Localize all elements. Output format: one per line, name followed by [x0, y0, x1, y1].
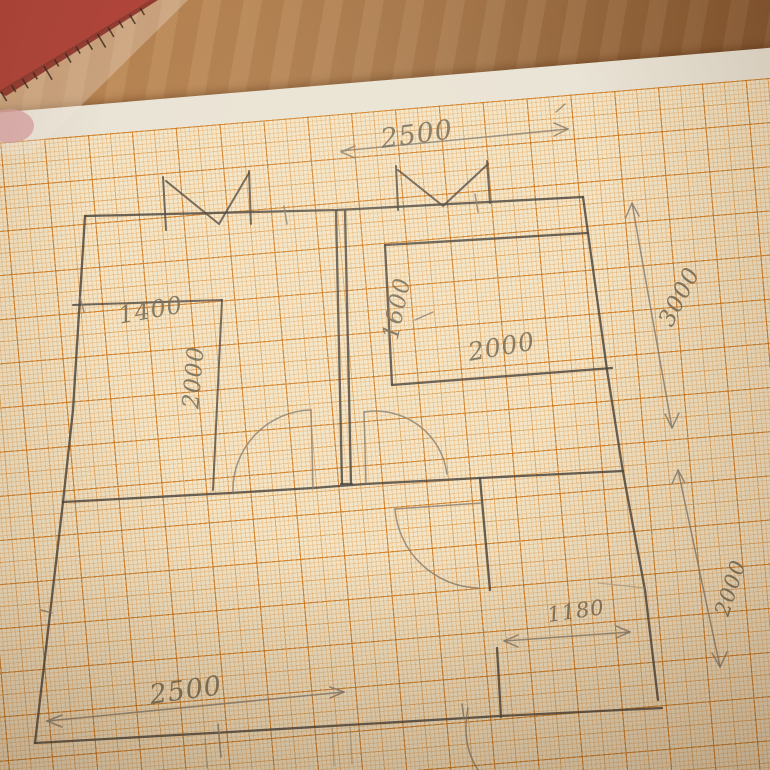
photo-canvas: 250014002000160020003000200011802500	[0, 0, 770, 770]
ruler	[0, 0, 770, 770]
